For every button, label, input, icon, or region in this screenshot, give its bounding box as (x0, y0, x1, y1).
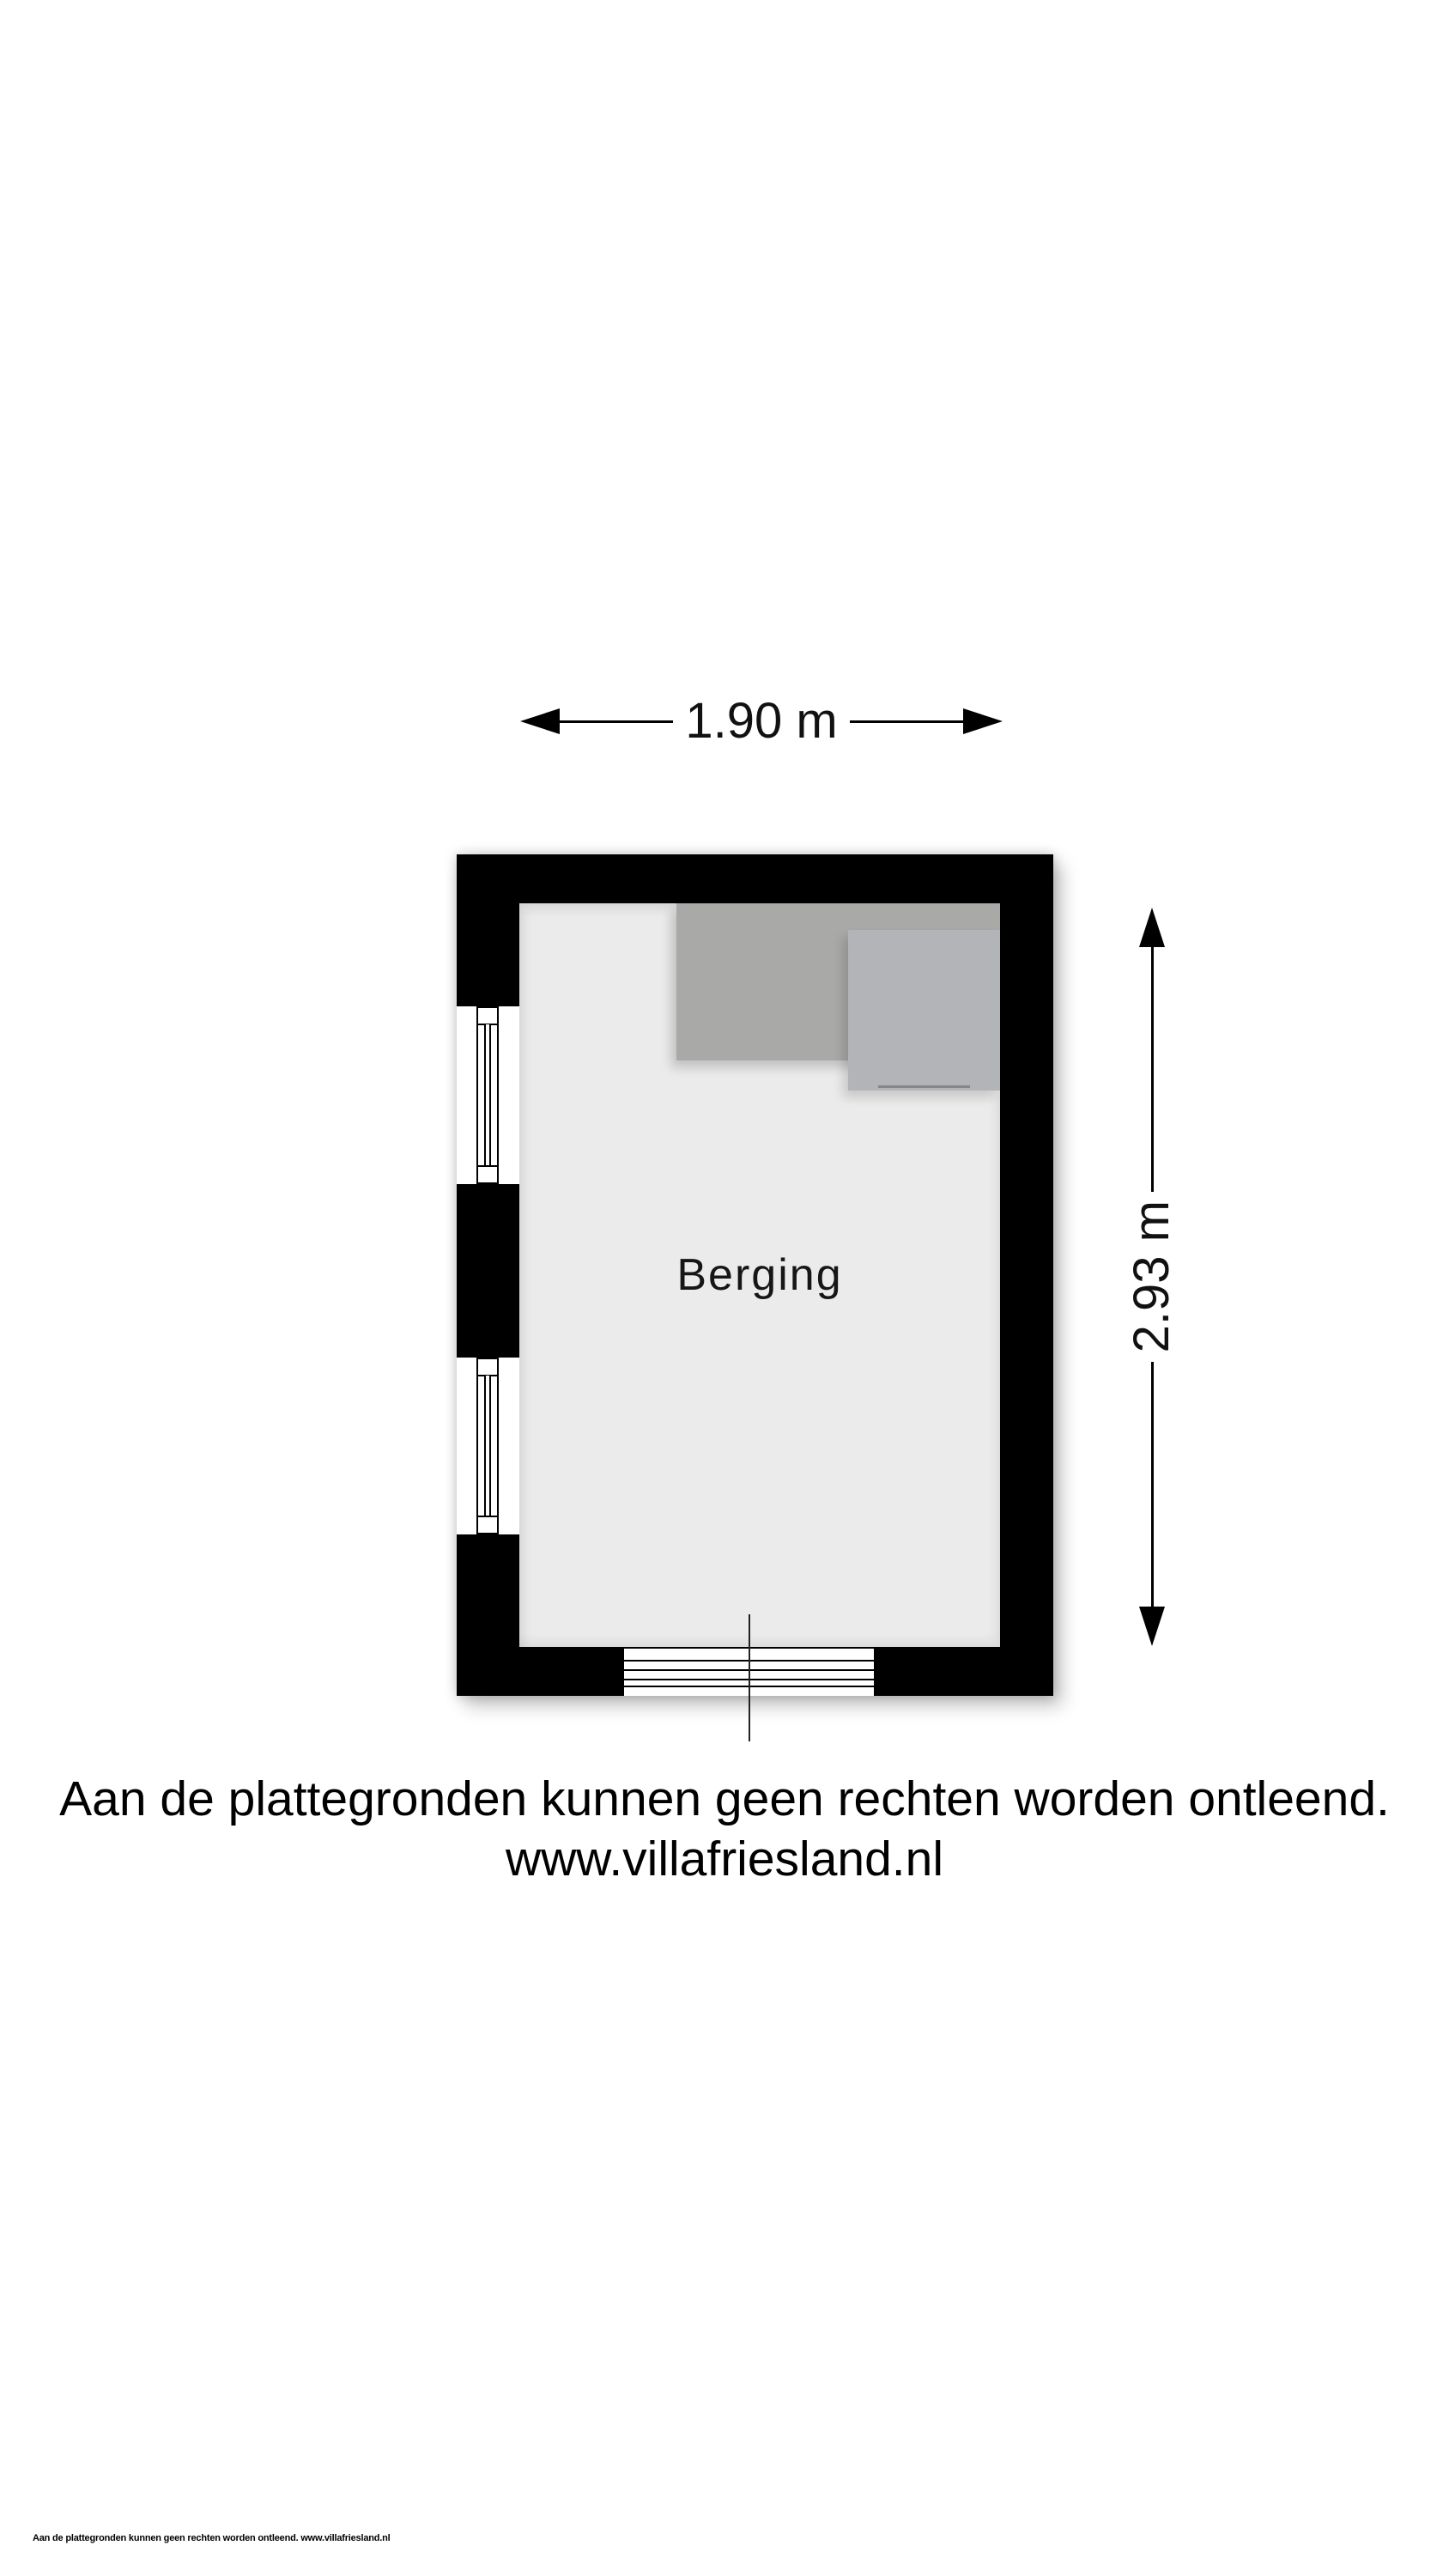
arrowhead-left-icon (520, 708, 560, 734)
floor-plan: Berging (457, 854, 1053, 1696)
arrowhead-right-icon (963, 708, 1003, 734)
window-glass-lines (484, 1376, 491, 1516)
window-cap (478, 1165, 497, 1182)
disclaimer: Aan de plattegronden kunnen geen rechten… (0, 1769, 1449, 1889)
footer-note: Aan de plattegronden kunnen geen rechten… (33, 2533, 391, 2543)
height-dimension: 2.93 m (1125, 908, 1179, 1646)
window-cap (478, 1516, 497, 1533)
width-dimension: 1.90 m (520, 689, 1003, 754)
dimension-line (1151, 947, 1154, 1192)
window-symbol-2 (457, 1358, 519, 1534)
dimension-line (850, 720, 963, 723)
window-cap (478, 1008, 497, 1025)
disclaimer-line-1: Aan de plattegronden kunnen geen rechten… (0, 1769, 1449, 1829)
appliance-fixture (848, 930, 1000, 1091)
appliance-front-line (878, 1085, 970, 1088)
door-axis-line (749, 1614, 750, 1741)
arrowhead-up-icon (1139, 908, 1165, 947)
window-frame-icon (476, 1358, 499, 1534)
width-dimension-label: 1.90 m (685, 696, 837, 746)
dimension-line (1151, 1362, 1154, 1607)
page: 1.90 m (0, 0, 1449, 2576)
room-label: Berging (519, 1249, 1000, 1301)
window-glass-lines (484, 1024, 491, 1166)
height-dimension-label: 2.93 m (1127, 1200, 1177, 1352)
arrowhead-down-icon (1139, 1607, 1165, 1646)
window-frame-icon (476, 1006, 499, 1184)
window-cap (478, 1359, 497, 1376)
dimension-line (560, 720, 673, 723)
window-symbol-1 (457, 1006, 519, 1184)
disclaimer-line-2: www.villafriesland.nl (0, 1829, 1449, 1889)
